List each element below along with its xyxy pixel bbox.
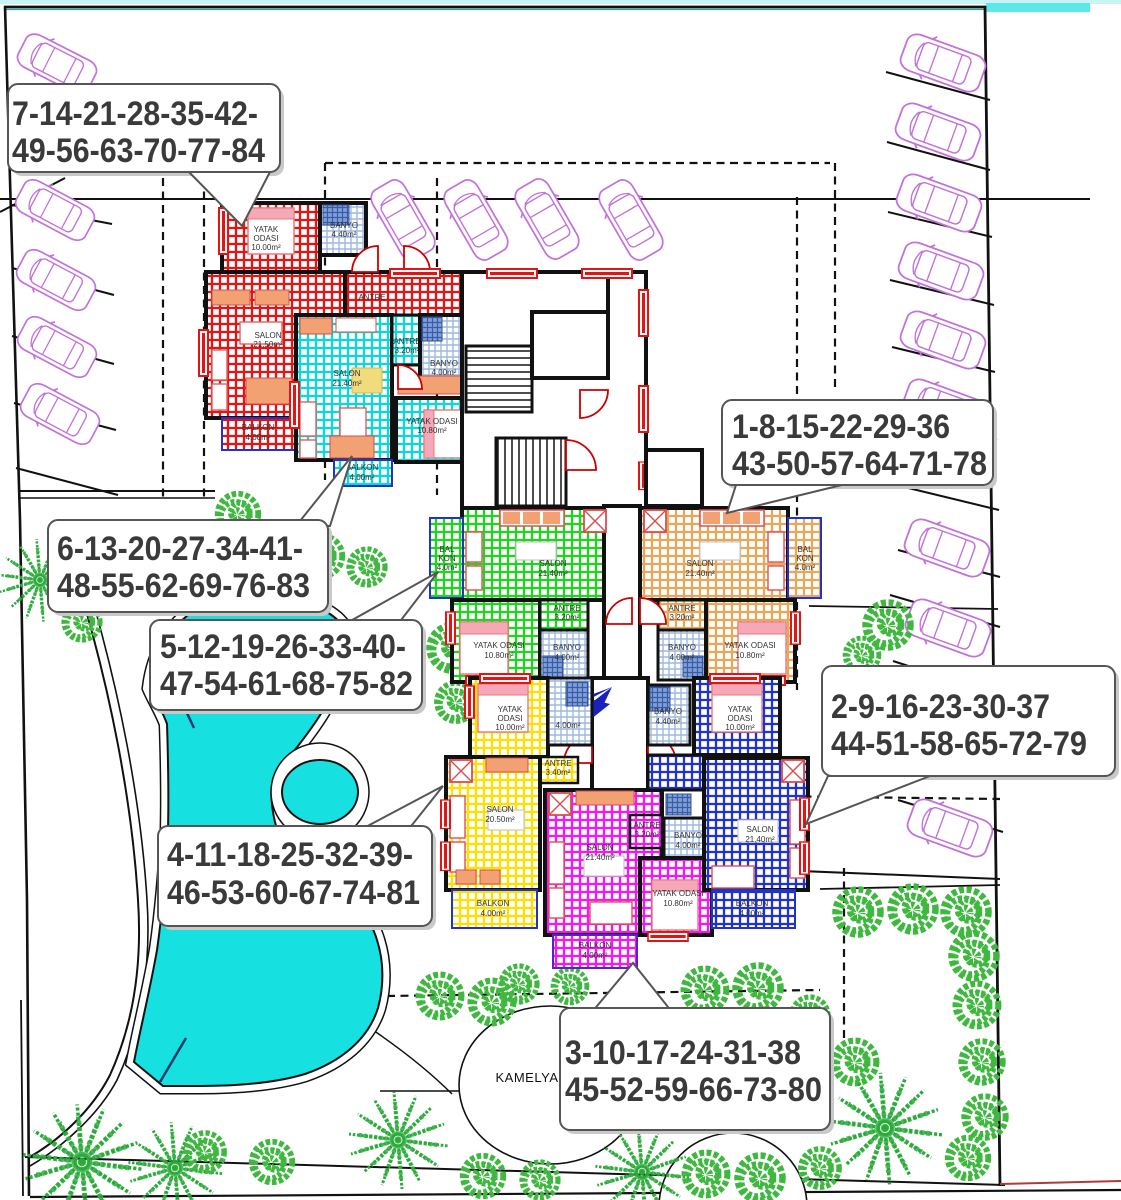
svg-text:47-54-61-68-75-82: 47-54-61-68-75-82 [160, 665, 413, 703]
svg-text:48-55-62-69-76-83: 48-55-62-69-76-83 [57, 567, 310, 605]
svg-text:4.40m²: 4.40m² [656, 717, 681, 726]
svg-text:46-53-60-67-74-81: 46-53-60-67-74-81 [167, 874, 420, 912]
svg-text:ODASI: ODASI [498, 714, 523, 723]
svg-text:BANYO: BANYO [430, 359, 458, 368]
svg-text:BANYO: BANYO [553, 643, 581, 652]
svg-text:KON: KON [796, 554, 814, 563]
svg-text:YATAK ODASI: YATAK ODASI [473, 641, 525, 650]
svg-text:10.80m²: 10.80m² [417, 426, 447, 435]
svg-text:4.00m²: 4.00m² [556, 721, 581, 730]
svg-text:49-56-63-70-77-84: 49-56-63-70-77-84 [12, 132, 265, 170]
svg-text:4.00m²: 4.00m² [555, 653, 580, 662]
svg-text:2-9-16-23-30-37: 2-9-16-23-30-37 [831, 688, 1050, 726]
svg-text:SALON: SALON [686, 559, 713, 568]
svg-text:21.40m²: 21.40m² [745, 835, 775, 844]
svg-text:3.20m²: 3.20m² [635, 830, 660, 839]
svg-text:YATAK: YATAK [728, 705, 753, 714]
svg-text:10.80m²: 10.80m² [484, 651, 514, 660]
svg-text:4.00m²: 4.00m² [740, 909, 765, 918]
svg-text:KAMELYA: KAMELYA [496, 1070, 559, 1085]
svg-text:21.50m²: 21.50m² [253, 340, 283, 349]
svg-text:SALON: SALON [746, 825, 773, 834]
svg-text:6-13-20-27-34-41-: 6-13-20-27-34-41- [57, 530, 303, 568]
svg-text:YATAK: YATAK [498, 705, 523, 714]
svg-text:ODASI: ODASI [254, 234, 279, 243]
svg-text:4.00m²: 4.00m² [246, 433, 271, 442]
svg-text:ANTRE: ANTRE [393, 337, 420, 346]
svg-text:YATAK ODASI: YATAK ODASI [406, 417, 458, 426]
svg-text:KON: KON [438, 554, 456, 563]
svg-text:4.00m²: 4.00m² [676, 841, 701, 850]
svg-text:4.40m²: 4.40m² [332, 230, 357, 239]
svg-text:BALKON: BALKON [477, 899, 510, 908]
svg-text:4.00m²: 4.00m² [670, 653, 695, 662]
svg-text:BANYO: BANYO [330, 221, 358, 230]
svg-text:4-11-18-25-32-39-: 4-11-18-25-32-39- [167, 836, 413, 874]
svg-text:ODASI: ODASI [728, 714, 753, 723]
svg-text:21.40m²: 21.40m² [585, 853, 615, 862]
svg-text:3.20m²: 3.20m² [395, 346, 420, 355]
svg-text:BALKON: BALKON [242, 423, 275, 432]
svg-text:4.00m²: 4.00m² [350, 473, 375, 482]
svg-text:21.40m²: 21.40m² [538, 569, 568, 578]
svg-text:BAL: BAL [797, 545, 813, 554]
svg-text:BANYO: BANYO [674, 831, 702, 840]
svg-text:7-14-21-28-35-42-: 7-14-21-28-35-42- [12, 95, 258, 133]
svg-text:BANYO: BANYO [668, 643, 696, 652]
svg-text:ANTRE: ANTRE [668, 604, 695, 613]
svg-text:4.0m²: 4.0m² [795, 563, 816, 572]
svg-text:21.40m²: 21.40m² [685, 569, 715, 578]
svg-text:ANTRE: ANTRE [633, 821, 660, 830]
svg-text:BALKON: BALKON [579, 941, 612, 950]
svg-text:BANYO: BANYO [654, 707, 682, 716]
svg-text:ANTRE: ANTRE [358, 293, 385, 302]
svg-text:5-12-19-26-33-40-: 5-12-19-26-33-40- [160, 628, 406, 666]
svg-text:ANTRE: ANTRE [544, 759, 571, 768]
svg-text:1-8-15-22-29-36: 1-8-15-22-29-36 [732, 408, 950, 446]
svg-text:10.00m²: 10.00m² [725, 723, 755, 732]
svg-text:BALKON: BALKON [346, 463, 379, 472]
svg-text:21.40m²: 21.40m² [332, 379, 362, 388]
svg-text:SALON: SALON [586, 843, 613, 852]
svg-text:YATAK ODASI: YATAK ODASI [724, 641, 776, 650]
svg-text:3.40m²: 3.40m² [546, 768, 571, 777]
svg-text:BAL: BAL [439, 545, 455, 554]
svg-text:3.20m²: 3.20m² [670, 613, 695, 622]
svg-text:ANTRE: ANTRE [553, 604, 580, 613]
svg-text:10.00m²: 10.00m² [495, 723, 525, 732]
svg-text:BALKON: BALKON [736, 899, 769, 908]
svg-text:4.0m²: 4.0m² [437, 563, 458, 572]
svg-text:3.20m²: 3.20m² [555, 613, 580, 622]
svg-text:SALON: SALON [333, 369, 360, 378]
svg-text:10.00m²: 10.00m² [251, 243, 281, 252]
svg-text:10.80m²: 10.80m² [663, 899, 693, 908]
svg-text:YATAK: YATAK [254, 225, 279, 234]
svg-text:4.00m²: 4.00m² [583, 951, 608, 960]
svg-text:4.00m²: 4.00m² [481, 909, 506, 918]
svg-text:SALON: SALON [539, 559, 566, 568]
svg-text:SALON: SALON [254, 331, 281, 340]
svg-text:SALON: SALON [486, 805, 513, 814]
svg-text:43-50-57-64-71-78: 43-50-57-64-71-78 [732, 445, 987, 483]
svg-text:10.80m²: 10.80m² [735, 651, 765, 660]
svg-text:44-51-58-65-72-79: 44-51-58-65-72-79 [831, 725, 1087, 763]
svg-text:20.50m²: 20.50m² [485, 815, 515, 824]
svg-text:YATAK ODASI: YATAK ODASI [652, 889, 704, 898]
svg-text:3-10-17-24-31-38: 3-10-17-24-31-38 [565, 1034, 801, 1072]
svg-text:45-52-59-66-73-80: 45-52-59-66-73-80 [565, 1071, 822, 1109]
